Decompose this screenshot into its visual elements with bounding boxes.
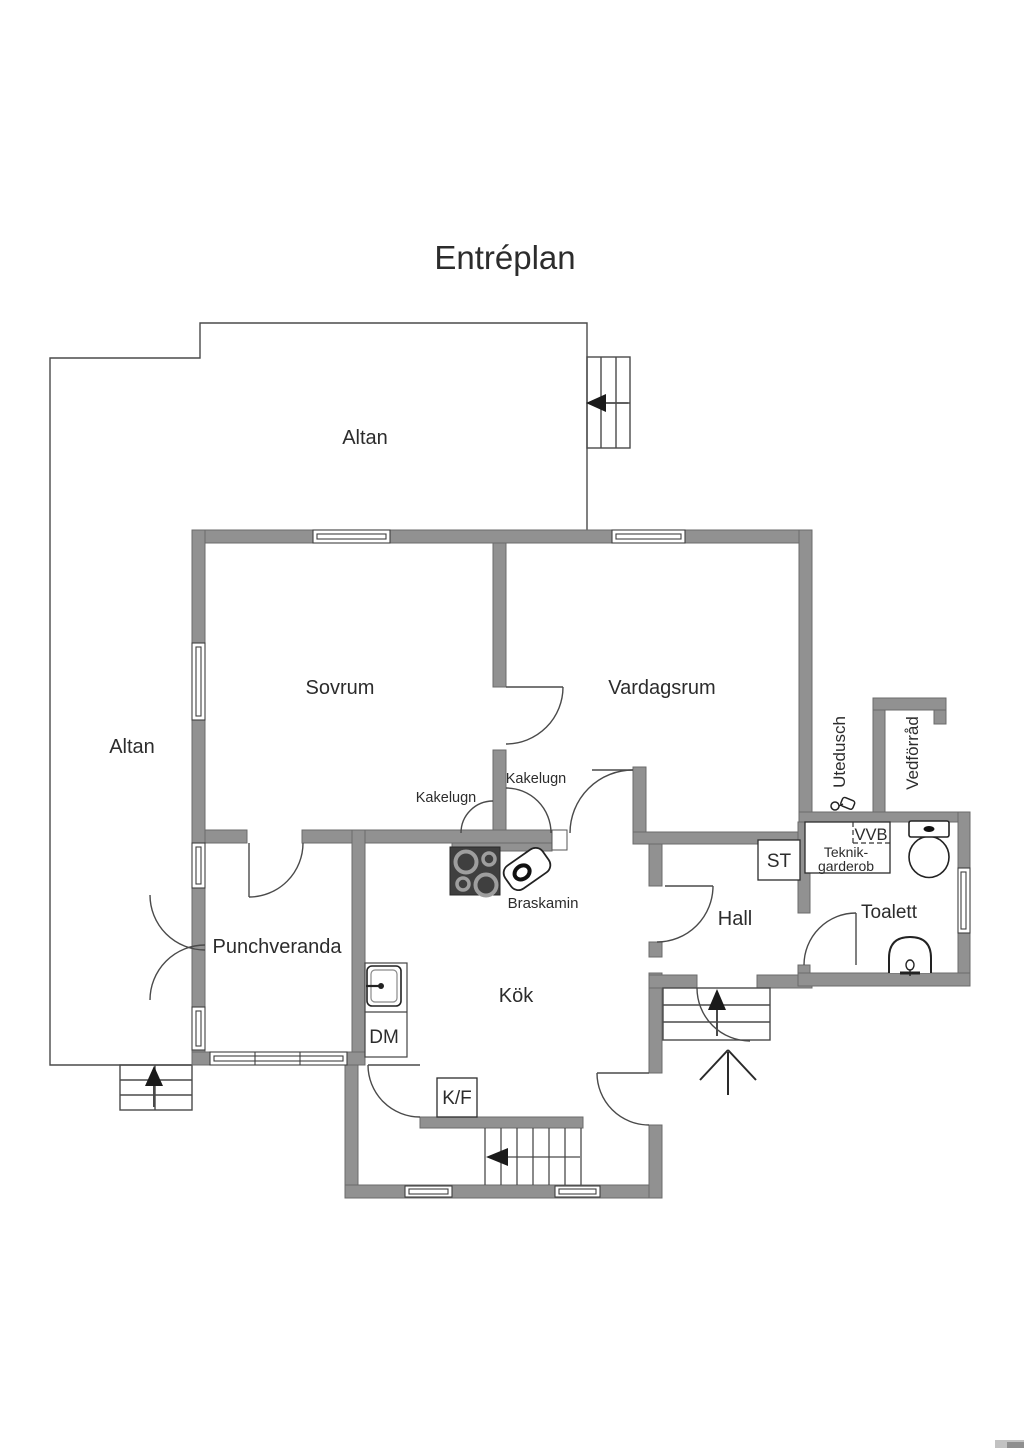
- wall-end-cap: [552, 830, 567, 850]
- room-label-kok: Kök: [499, 985, 534, 1007]
- door-hall-toalett: [804, 913, 856, 965]
- wall-sovrum-bottom-left: [205, 830, 247, 843]
- label-kakelugn-right: Kakelugn: [506, 771, 566, 787]
- tech-closet: VVB Teknik- garderob: [805, 822, 890, 874]
- stair-arrow-left-icon: [586, 394, 606, 412]
- kitchen-counter: DM: [365, 963, 407, 1057]
- room-label-punchveranda: Punchveranda: [213, 936, 343, 958]
- fridge-freezer-label: K/F: [442, 1088, 472, 1109]
- fridge-freezer: K/F: [437, 1078, 477, 1117]
- wall-extension-right-lower: [649, 1125, 662, 1198]
- shower-icon: [831, 797, 855, 810]
- wall-left: [192, 530, 205, 1065]
- floorplan-svg: Entréplan: [0, 0, 1024, 1448]
- door-entrance: [697, 988, 750, 1041]
- toilet-icon: [909, 821, 949, 878]
- room-label-altan-side: Altan: [109, 736, 155, 758]
- wall-punchveranda-divider: [352, 830, 365, 1065]
- floorplan-page: Entréplan: [0, 0, 1024, 1448]
- window-top-sovrum: [313, 530, 390, 543]
- window-extension-bottom-2: [555, 1186, 600, 1197]
- room-label-vardagsrum: Vardagsrum: [608, 677, 715, 699]
- entrance-arrow-up-icon: [708, 989, 726, 1010]
- door-sovrum-vardagsrum: [506, 687, 563, 744]
- door-sovrum-punchveranda: [249, 843, 303, 897]
- door-vardagsrum-kok: [570, 770, 633, 833]
- stove-burners-icon: [450, 847, 500, 896]
- wall-top: [192, 530, 812, 543]
- tech-closet-label-line2: garderob: [818, 858, 874, 874]
- sink-icon: [889, 937, 931, 976]
- wall-hall-divider-b: [649, 942, 662, 957]
- wall-vedforrad-top: [873, 698, 946, 710]
- dishwasher-label: DM: [369, 1027, 399, 1048]
- window-punchveranda-bottom: [210, 1052, 347, 1065]
- label-kakelugn-left: Kakelugn: [416, 790, 476, 806]
- wall-hall-bottom-left: [649, 975, 697, 988]
- label-braskamin: Braskamin: [508, 895, 579, 912]
- label-utedusch: Utedusch: [830, 716, 849, 788]
- window-left-punchveranda-1: [192, 843, 205, 888]
- water-heater-label: VVB: [854, 826, 887, 844]
- basement-stair-arrow-icon: [486, 1148, 508, 1166]
- window-top-vardagsrum: [612, 530, 685, 543]
- wall-divider-bottom: [493, 750, 506, 843]
- door-kok-east: [597, 1073, 649, 1125]
- kakelugn-right-icon: [506, 788, 551, 833]
- wall-extension-bottom: [345, 1185, 662, 1198]
- room-label-hall: Hall: [718, 908, 752, 930]
- wood-stove-icon: [500, 844, 554, 893]
- window-left-sovrum: [192, 643, 205, 720]
- window-toalett-right: [958, 868, 970, 933]
- stair-arrow-up-icon: [145, 1066, 163, 1086]
- door-extension: [368, 1065, 420, 1117]
- wall-extension-right-upper: [649, 988, 662, 1073]
- room-label-sovrum: Sovrum: [306, 677, 375, 699]
- wall-extension-left: [345, 1065, 358, 1198]
- cleaning-closet: ST: [758, 840, 800, 880]
- wall-divider-top: [493, 543, 506, 687]
- window-left-punchveranda-2: [192, 1007, 205, 1050]
- room-label-altan-top: Altan: [342, 427, 388, 449]
- wall-vedforrad-stub: [934, 710, 946, 724]
- kitchen-sink-icon: [366, 966, 401, 1006]
- wall-toalett-bottom: [798, 973, 970, 986]
- window-extension-bottom-1: [405, 1186, 452, 1197]
- wall-stairwell: [420, 1117, 583, 1128]
- wall-right: [799, 530, 812, 822]
- wall-middle-horizontal: [302, 830, 552, 843]
- label-vedforrad: Vedförråd: [903, 716, 922, 790]
- door-kok-hall: [657, 886, 713, 942]
- watermark-fragment: [995, 1440, 1024, 1448]
- wall-vedforrad-left: [873, 698, 885, 812]
- page-title: Entréplan: [434, 239, 575, 276]
- room-label-toalett: Toalett: [861, 902, 918, 923]
- wall-hall-divider-a: [649, 844, 662, 886]
- cleaning-closet-label: ST: [767, 851, 792, 872]
- entry-direction-icon: [700, 1050, 756, 1095]
